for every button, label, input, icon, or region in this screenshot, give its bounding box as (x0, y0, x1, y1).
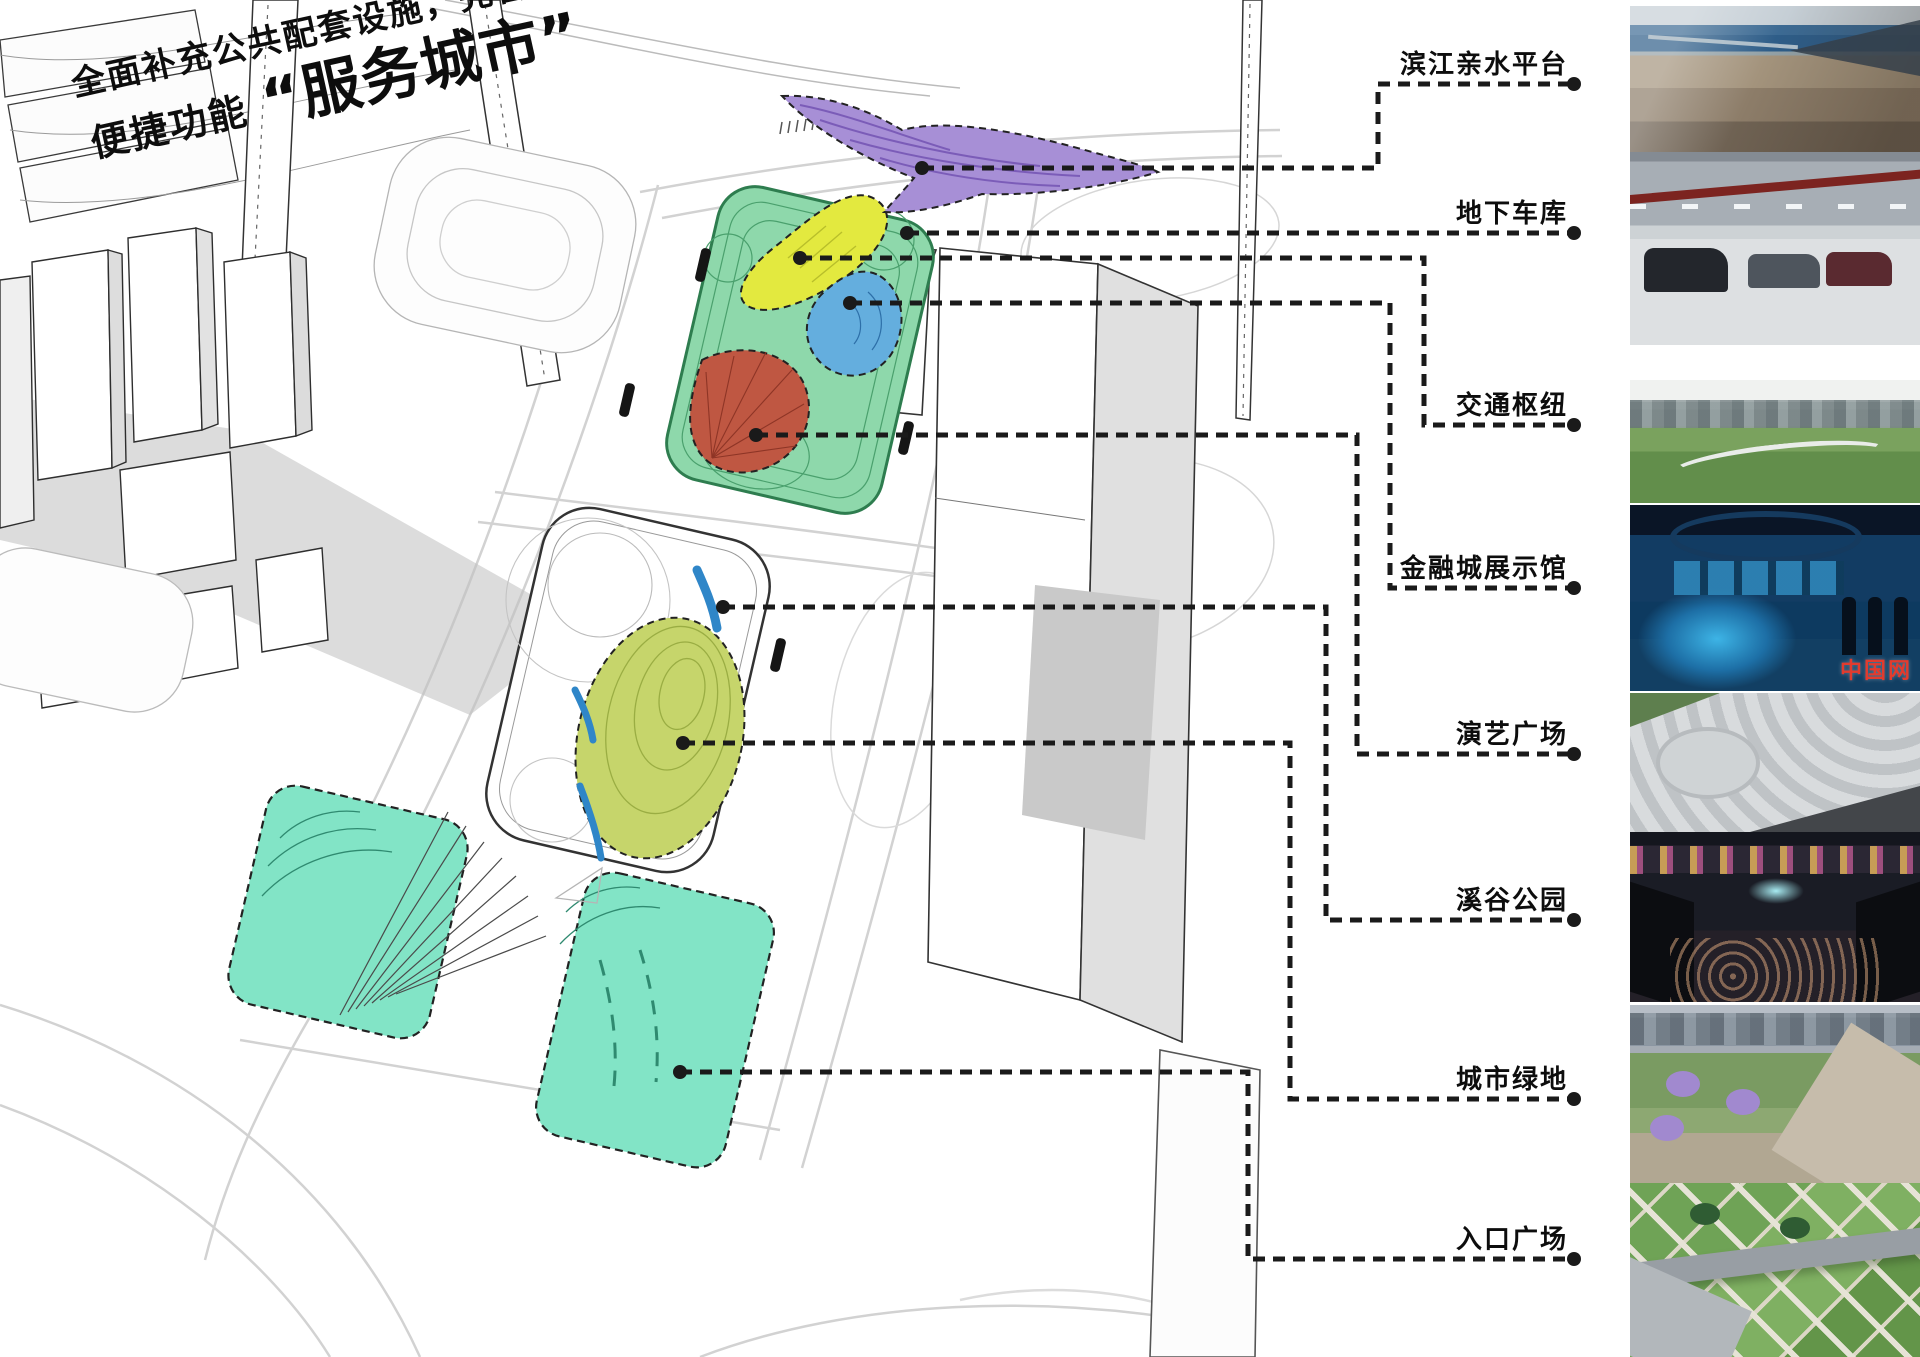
visitor-silhouette (1842, 597, 1856, 655)
jacaranda-tree (1650, 1115, 1684, 1141)
label-transport-hub: 交通枢纽 (1456, 385, 1568, 422)
parked-car (1826, 252, 1892, 286)
leader-dot-valley-park (1567, 913, 1581, 927)
underground-parking-photo (1630, 152, 1920, 345)
leader-dot-performance-plaza (749, 428, 763, 442)
jacaranda-tree (1726, 1089, 1760, 1115)
leader-dot-valley-park (716, 600, 730, 614)
label-urban-green-space: 城市绿地 (1456, 1059, 1568, 1096)
leader-dot-urban-green-space (676, 736, 690, 750)
urban-greenery-photo (1630, 1005, 1920, 1183)
watermark-logo: 中国网 (1840, 653, 1912, 685)
label-riverside-platform: 滨江亲水平台 (1400, 44, 1568, 81)
riverside-canopy-zone (782, 96, 1158, 212)
waterfront-deck-photo (1630, 6, 1920, 152)
label-valley-park: 溪谷公园 (1456, 880, 1568, 917)
stream-valley-photo (1630, 832, 1920, 1002)
strip-lights (1630, 204, 1920, 209)
stage-circle (1656, 727, 1760, 799)
exhibition-hall-photo: 中国网 (1630, 505, 1920, 691)
leader-dot-underground-garage (1567, 226, 1581, 240)
transport-hub-photo (1630, 380, 1920, 503)
leader-dot-transport-hub (1567, 418, 1581, 432)
leader-dot-riverside-platform (915, 161, 929, 175)
visitor-silhouette (1868, 597, 1882, 655)
leader-dot-entrance-plaza (1567, 1252, 1581, 1266)
leader-line-entrance-plaza (680, 1072, 1574, 1259)
diagonal-road (1772, 1023, 1920, 1183)
photo-sheen (1630, 6, 1920, 152)
leader-dot-finance-city-exhibition-hall (843, 296, 857, 310)
crowd-speckle (1670, 938, 1880, 1002)
leader-dot-transport-hub (793, 251, 807, 265)
leader-dot-performance-plaza (1567, 747, 1581, 761)
leader-dot-underground-garage (900, 226, 914, 240)
label-finance-city-exhibition-hall: 金融城展示馆 (1400, 548, 1568, 585)
leader-dot-urban-green-space (1567, 1092, 1581, 1106)
jacaranda-tree (1666, 1071, 1700, 1097)
lawn-corner (1630, 693, 1720, 727)
amphitheater-photo (1630, 693, 1920, 832)
palm-tree (1780, 1217, 1810, 1239)
label-performance-plaza: 演艺广场 (1456, 714, 1568, 751)
leader-dot-entrance-plaza (673, 1065, 687, 1079)
parked-car (1644, 248, 1728, 292)
leader-dot-riverside-platform (1567, 77, 1581, 91)
skyline-band (1630, 400, 1920, 428)
label-underground-garage: 地下车库 (1456, 193, 1568, 230)
display-screens (1674, 561, 1844, 595)
visitor-silhouette (1894, 597, 1908, 655)
presentation-board: 全面补充公共配套设施，完善城市 便捷功能 “服务城市” 滨江亲水平台 地下车库 … (0, 0, 1920, 1357)
ceiling-ring (1670, 511, 1862, 563)
palm-tree (1690, 1203, 1720, 1225)
parked-car (1748, 254, 1820, 288)
shadow-wedge (1750, 786, 1920, 832)
label-entrance-plaza: 入口广场 (1456, 1219, 1568, 1256)
entrance-plaza-photo (1630, 1183, 1920, 1357)
city-lights-band (1630, 846, 1920, 874)
fountain-glow (1748, 878, 1804, 904)
green-roof-swoosh (1669, 433, 1892, 492)
red-pipe (1630, 169, 1920, 205)
leader-dot-finance-city-exhibition-hall (1567, 581, 1581, 595)
